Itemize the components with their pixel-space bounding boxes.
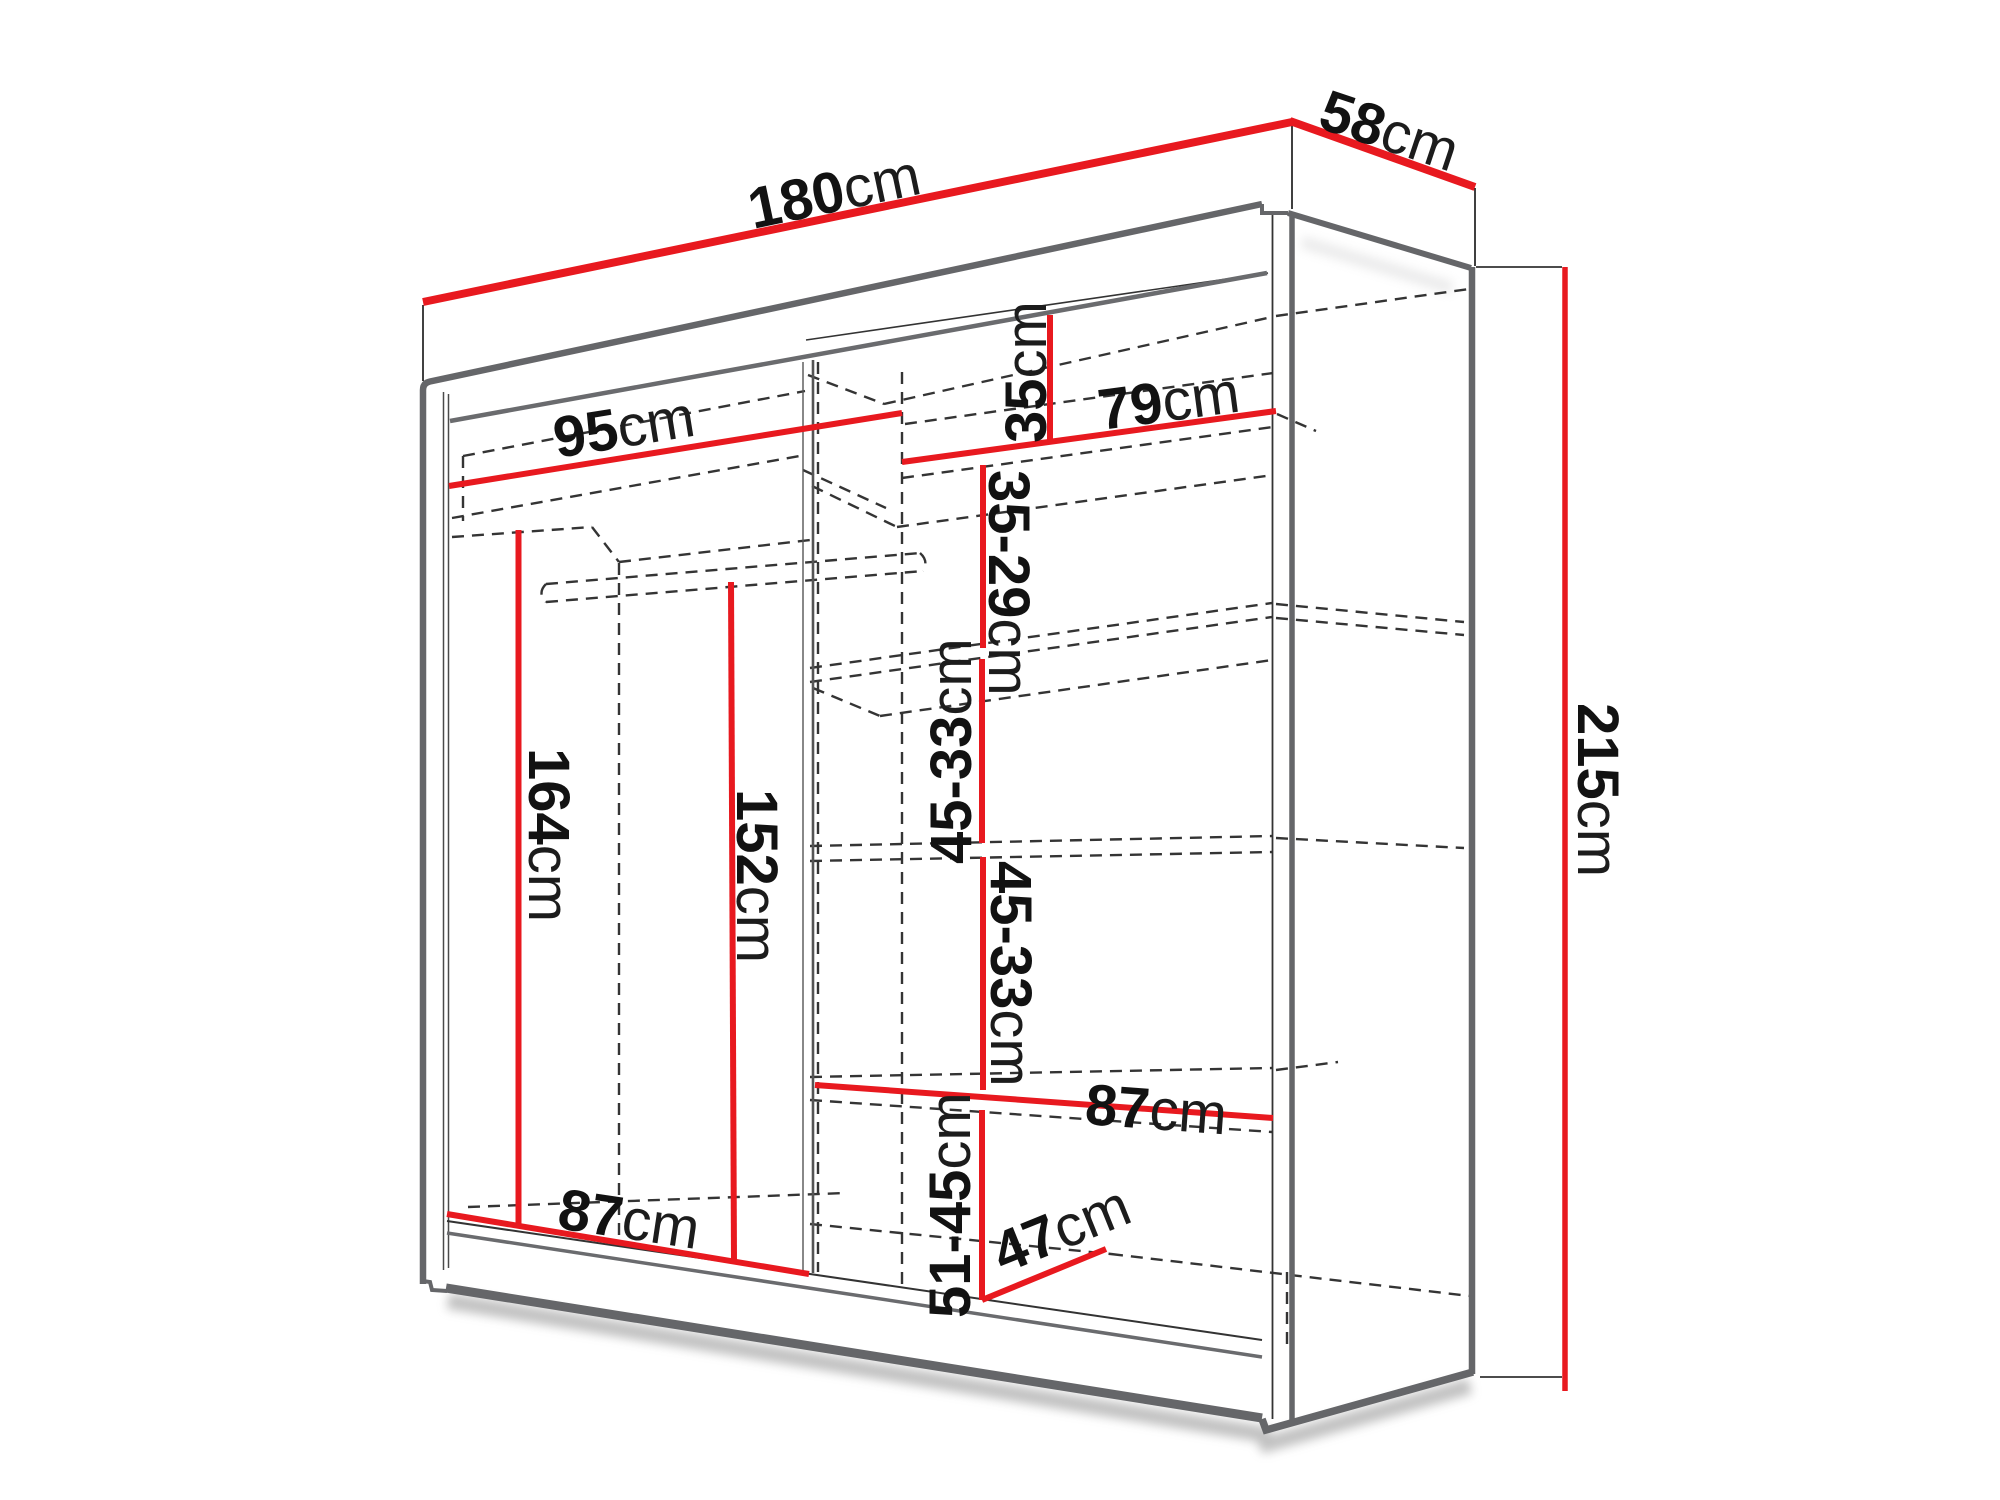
svg-text:35cm: 35cm — [994, 301, 1059, 443]
svg-text:215cm: 215cm — [1565, 703, 1630, 877]
svg-text:45-33cm: 45-33cm — [919, 638, 984, 864]
svg-text:51-45cm: 51-45cm — [918, 1092, 983, 1318]
svg-text:87cm: 87cm — [1083, 1072, 1229, 1147]
svg-text:152cm: 152cm — [724, 789, 789, 963]
svg-text:35-29cm: 35-29cm — [976, 470, 1041, 696]
svg-text:164cm: 164cm — [516, 748, 581, 922]
svg-text:45-33cm: 45-33cm — [978, 861, 1043, 1087]
